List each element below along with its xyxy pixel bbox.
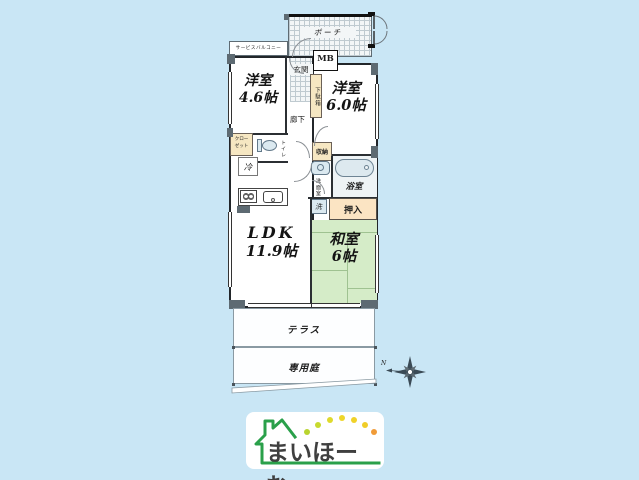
window-left-western1	[228, 72, 233, 124]
corner-block-1	[227, 54, 235, 64]
garden-corner-2	[374, 346, 377, 349]
logo-dot-icon	[304, 429, 310, 435]
western1-name: 洋室	[230, 73, 286, 90]
corner-block-6	[371, 146, 378, 158]
porch-top-wall	[285, 14, 372, 17]
logo-dot-icon	[351, 417, 357, 423]
western2-size: 6.0帖	[316, 97, 376, 114]
closet-label: クロー ゼット	[230, 137, 253, 151]
bathtub-drain-icon	[364, 165, 369, 170]
tatami-line-h2	[311, 270, 347, 271]
western2-name: 洋室	[316, 80, 376, 97]
window-right-washitsu	[375, 235, 380, 293]
wall-bath-west	[331, 156, 333, 198]
hallway-label: 廊下	[284, 114, 311, 125]
bathroom-label: 浴室	[334, 180, 374, 192]
closet-label-line1: クロー	[230, 137, 253, 144]
closet-label-line2: ゼット	[230, 144, 253, 151]
compass-north-label: N	[381, 360, 386, 367]
tatami-line-h3	[347, 288, 377, 289]
corner-block-5	[371, 63, 378, 75]
mb-label: MB	[313, 54, 338, 64]
window-bottom-mullion	[311, 303, 312, 308]
washitsu-size: 6帖	[311, 248, 377, 265]
garden-corner-1	[232, 346, 235, 349]
washitsu-name: 和室	[311, 231, 377, 248]
window-left-ldk	[228, 212, 233, 287]
kitchen-end-wall	[237, 206, 250, 213]
western1-label: 洋室 4.6帖	[230, 73, 286, 106]
window-right-western2	[375, 84, 380, 139]
washbasin-bowl-icon	[317, 164, 324, 171]
stove-icon	[240, 190, 257, 203]
washer-label: 洗	[310, 202, 327, 212]
oshiire-label: 押入	[329, 203, 377, 216]
toilet-label: トイレ	[279, 137, 287, 160]
fridge-label: 冷	[238, 161, 258, 173]
floorplan-canvas: ポーチ サービスバルコニー MB 玄関 下駄箱 廊下 洋室 4.6帖 洋室 6.…	[0, 0, 639, 480]
storage-label: 収納	[312, 147, 332, 156]
washitsu-label: 和室 6帖	[311, 231, 377, 265]
compass-icon	[384, 352, 436, 392]
ldk-name: LDK	[232, 224, 311, 243]
logo-dot-icon	[327, 417, 333, 423]
western2-label: 洋室 6.0帖	[316, 80, 376, 114]
wall-toilet-south	[253, 161, 288, 163]
terrace-label: テラス	[233, 322, 375, 336]
western1-size: 4.6帖	[230, 90, 286, 107]
logo-dot-icon	[371, 429, 377, 435]
ldk-label: LDK 11.9帖	[232, 224, 311, 261]
logo-dot-icon	[315, 422, 321, 428]
corner-block-2	[227, 128, 233, 137]
corner-block-7	[284, 14, 289, 20]
window-bottom	[248, 303, 360, 308]
ldk-size: 11.9帖	[232, 243, 311, 261]
entrance-door-icon	[368, 12, 398, 48]
toilet-bowl-icon	[262, 140, 277, 151]
porch-label: ポーチ	[300, 27, 356, 38]
garden-label: 専用庭	[233, 360, 375, 374]
logo-dot-icon	[362, 422, 368, 428]
service-balcony-label: サービスバルコニー	[230, 45, 287, 51]
garden-boundary-strip	[230, 376, 380, 398]
logo-text: まいほーむ	[266, 433, 376, 480]
logo-dot-icon	[339, 415, 345, 421]
sink-tap-icon	[271, 198, 275, 202]
